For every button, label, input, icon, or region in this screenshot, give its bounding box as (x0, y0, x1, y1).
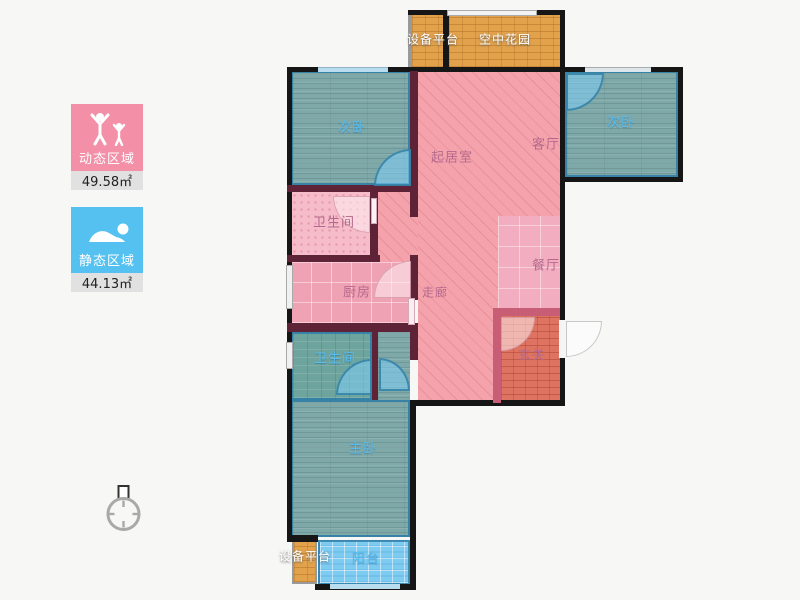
legend-static-card: 静态区域 (71, 207, 143, 273)
legend-dynamic-area: 49.58㎡ (71, 171, 143, 190)
label-parlor: 客厅 (532, 134, 560, 153)
people-arms-up-icon (84, 112, 130, 146)
wall-garden-top-a (408, 10, 448, 15)
wall-bath-lower-right (372, 332, 378, 400)
wall-garden-right (560, 10, 565, 70)
legend-static-label: 静态区域 (79, 250, 135, 269)
wall-kitchen-bottom (287, 323, 418, 332)
wall-foyer-top (493, 308, 560, 316)
window-garden (447, 10, 537, 16)
wall-bottom-main (415, 400, 565, 406)
window-bath-lower (286, 342, 293, 369)
window-balcony (330, 584, 400, 589)
legend-dynamic-card: 动态区域 (71, 104, 143, 171)
wall-bedroom-left-bottom (287, 185, 418, 192)
label-foyer: 玄关 (518, 345, 546, 364)
label-equip-bottom: 设备平台 (279, 548, 331, 565)
wall-foyer-left (493, 308, 501, 403)
wall-lower-right (410, 400, 416, 590)
compass-icon (98, 483, 150, 535)
label-dining: 餐厅 (532, 255, 560, 274)
label-balcony: 阳台 (352, 548, 380, 567)
label-master: 主卧 (349, 438, 377, 457)
legend-static-area: 44.13㎡ (71, 273, 143, 292)
wall-right-upper (678, 67, 683, 182)
wall-bath-kitchen-divider (287, 255, 380, 262)
door-leaf-kitchen (408, 298, 415, 325)
sleeping-person-icon (84, 218, 130, 248)
window-kitchen (286, 265, 293, 309)
label-bath-lower: 卫生间 (314, 348, 356, 367)
room-master (291, 400, 410, 537)
wall-master-corridor (410, 332, 418, 360)
door-leaf-bath-upper (371, 198, 377, 224)
wall-bedroom-right-bottom (563, 177, 683, 182)
window-bedroom-right (585, 67, 651, 72)
label-bath-upper: 卫生间 (313, 212, 355, 231)
window-bedroom-left (318, 67, 388, 72)
legend-dynamic-label: 动态区域 (79, 148, 135, 167)
label-bedroom-right: 次卧 (607, 112, 635, 131)
label-equip-top: 设备平台 (407, 31, 459, 48)
label-living: 起居室 (431, 147, 473, 166)
label-kitchen: 厨房 (343, 282, 371, 301)
wall-master-bottom-left (287, 535, 318, 542)
label-bedroom-left: 次卧 (338, 117, 366, 136)
wall-kitchen-right (410, 255, 418, 300)
door-arc-entrance (566, 321, 602, 357)
wall-bedroom-left-right (410, 71, 418, 217)
label-corridor: 走廊 (422, 284, 448, 301)
label-sky-garden: 空中花园 (479, 31, 531, 48)
floorplan-screen: 动态区域 49.58㎡ 静态区域 44.13㎡ (0, 0, 800, 600)
